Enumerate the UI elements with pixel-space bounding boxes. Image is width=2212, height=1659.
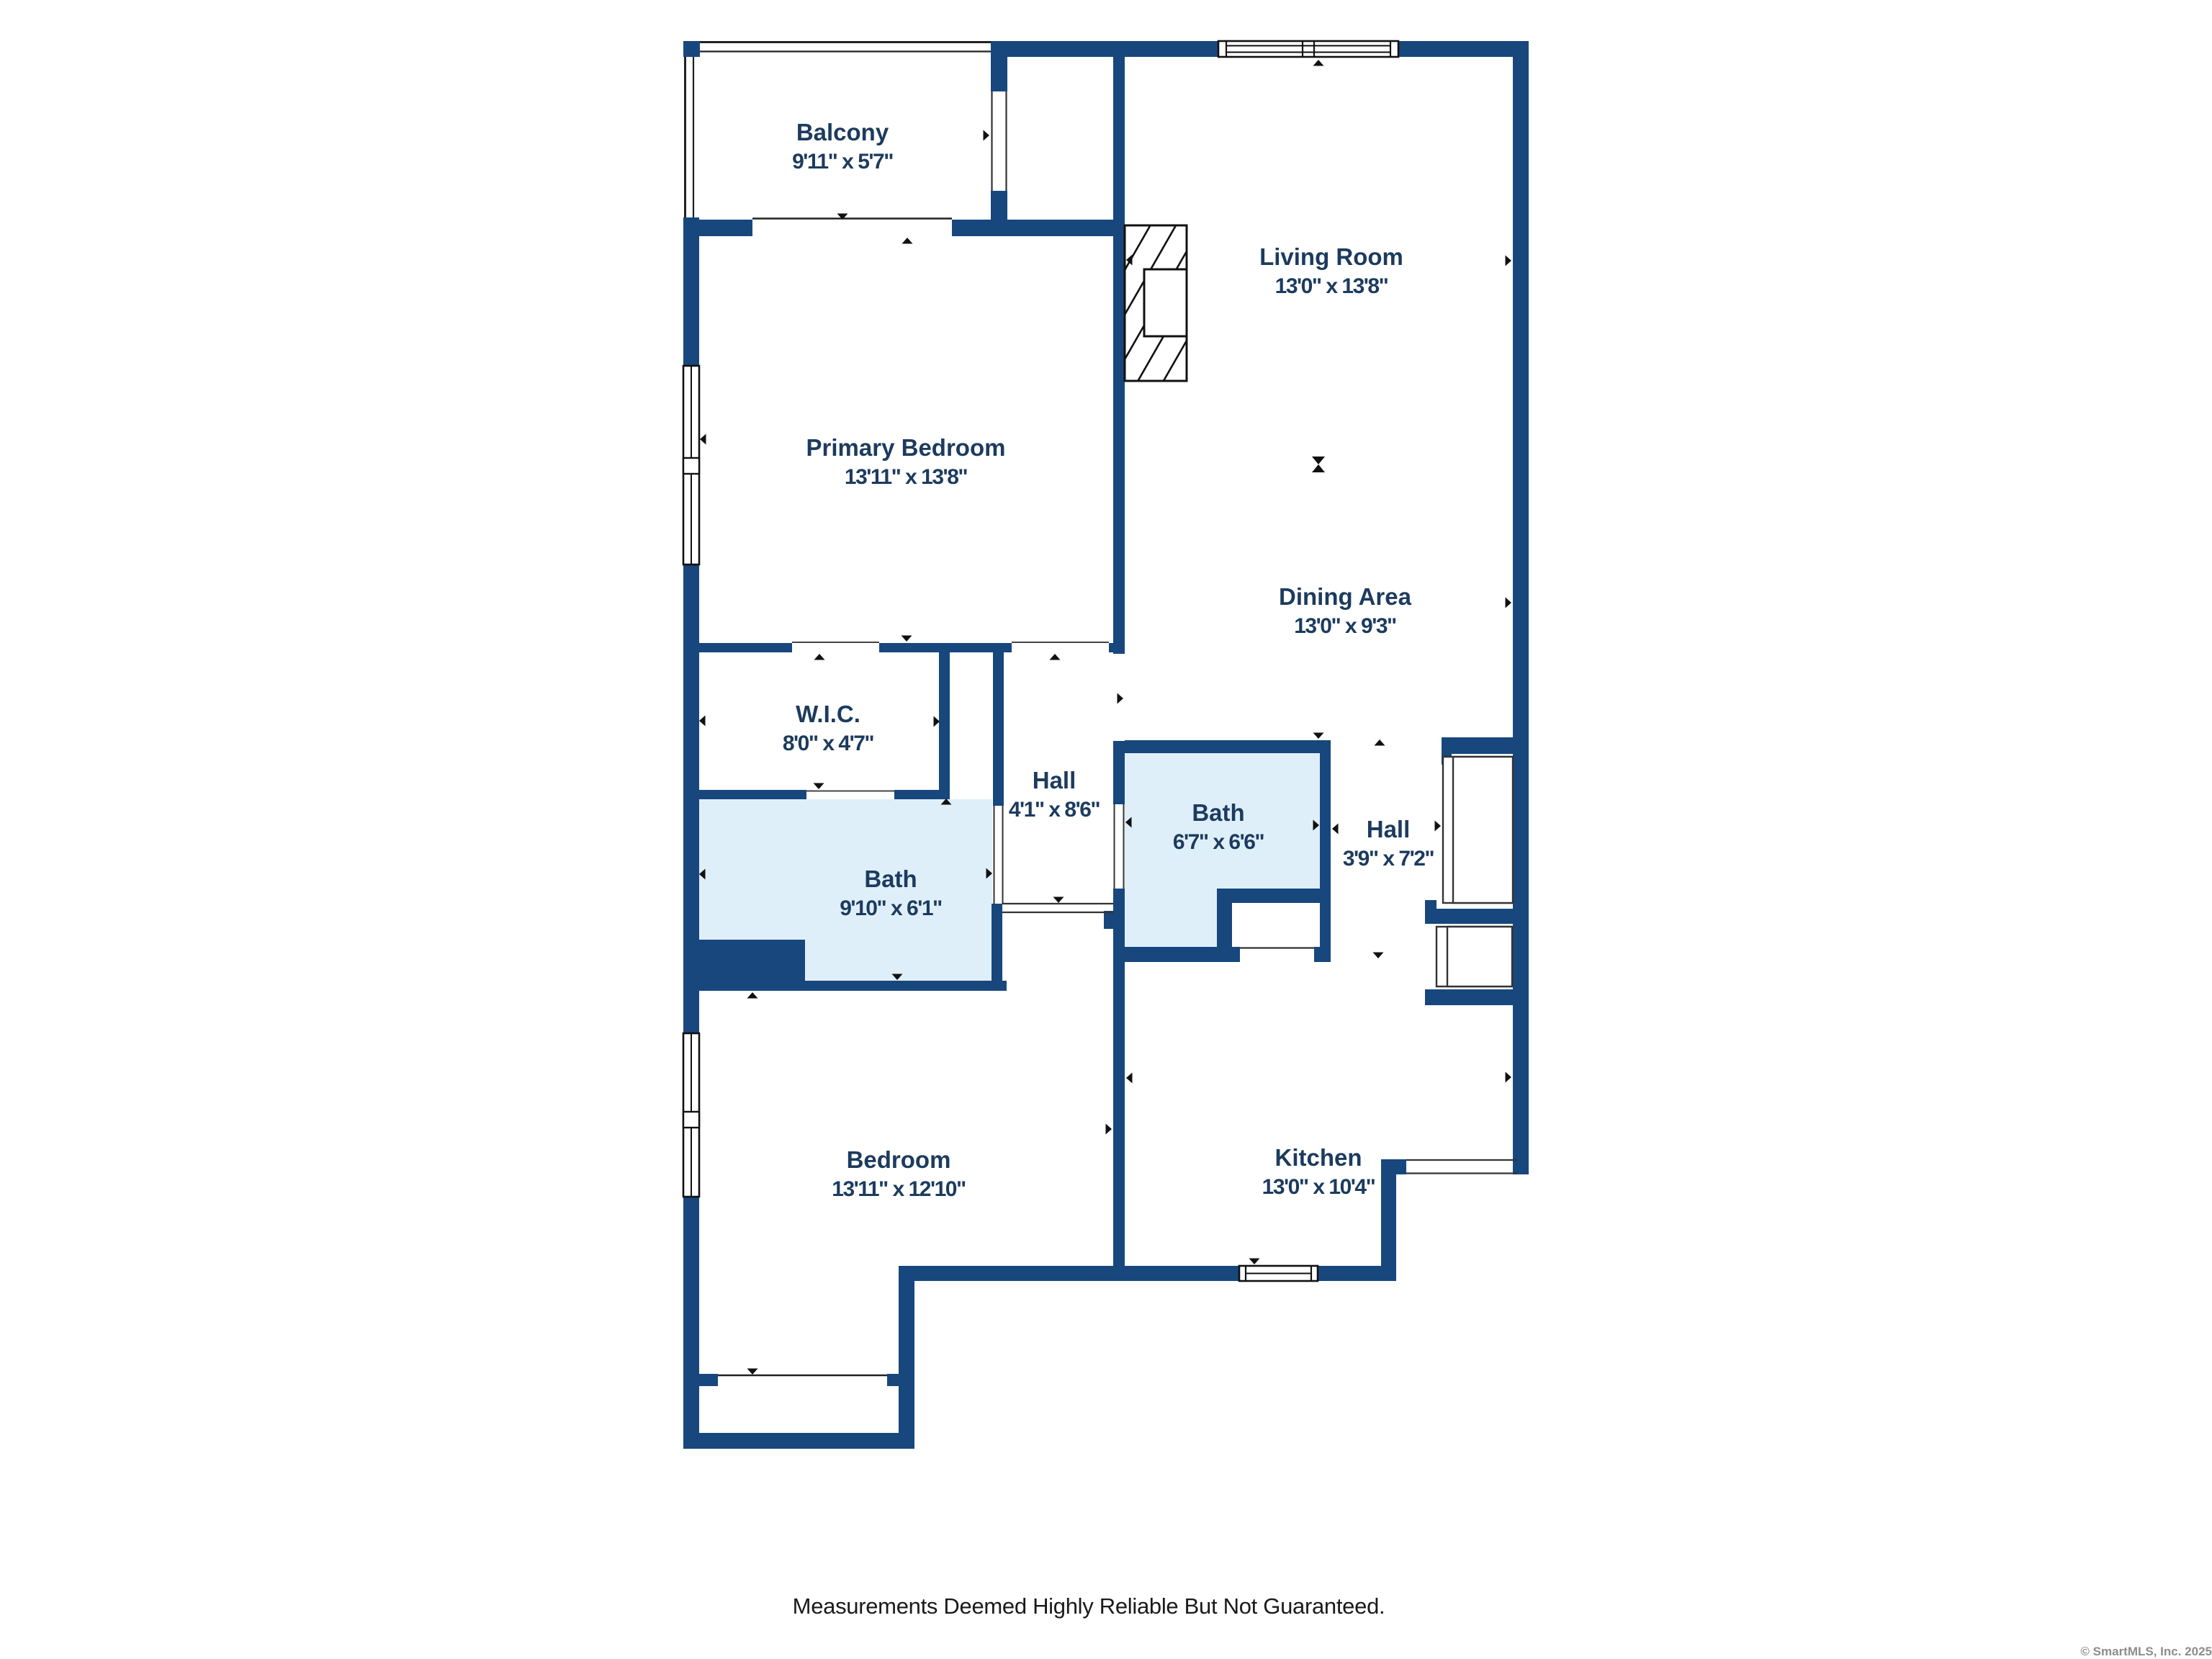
svg-text:Living Room: Living Room: [1259, 243, 1403, 270]
svg-text:Dining Area: Dining Area: [1279, 583, 1412, 610]
svg-text:13'0" x 10'4": 13'0" x 10'4": [1262, 1175, 1375, 1199]
svg-text:4'1" x 8'6": 4'1" x 8'6": [1009, 798, 1100, 822]
svg-text:Balcony: Balcony: [796, 119, 889, 145]
svg-text:W.I.C.: W.I.C.: [796, 701, 860, 727]
svg-text:13'0" x 9'3": 13'0" x 9'3": [1294, 614, 1396, 638]
svg-text:Measurements Deemed Highly Rel: Measurements Deemed Highly Reliable But …: [793, 1593, 1385, 1619]
svg-text:8'0" x 4'7": 8'0" x 4'7": [783, 732, 874, 755]
svg-text:Primary Bedroom: Primary Bedroom: [806, 434, 1006, 461]
svg-text:Kitchen: Kitchen: [1274, 1144, 1362, 1171]
svg-text:Bath: Bath: [864, 866, 917, 892]
svg-text:Hall: Hall: [1367, 816, 1411, 842]
svg-text:Hall: Hall: [1033, 767, 1076, 793]
svg-text:3'9" x 7'2": 3'9" x 7'2": [1343, 847, 1434, 871]
svg-text:6'7" x 6'6": 6'7" x 6'6": [1173, 830, 1264, 854]
svg-text:9'11" x 5'7": 9'11" x 5'7": [792, 150, 893, 174]
svg-text:9'10" x 6'1": 9'10" x 6'1": [840, 896, 942, 920]
svg-text:Bath: Bath: [1192, 799, 1244, 826]
svg-text:13'11" x 13'8": 13'11" x 13'8": [845, 465, 967, 489]
svg-text:© SmartMLS, Inc. 2025: © SmartMLS, Inc. 2025: [2080, 1645, 2212, 1658]
svg-text:Bedroom: Bedroom: [847, 1146, 951, 1173]
svg-text:13'0" x 13'8": 13'0" x 13'8": [1275, 274, 1388, 298]
svg-text:13'11" x 12'10": 13'11" x 12'10": [832, 1177, 966, 1201]
